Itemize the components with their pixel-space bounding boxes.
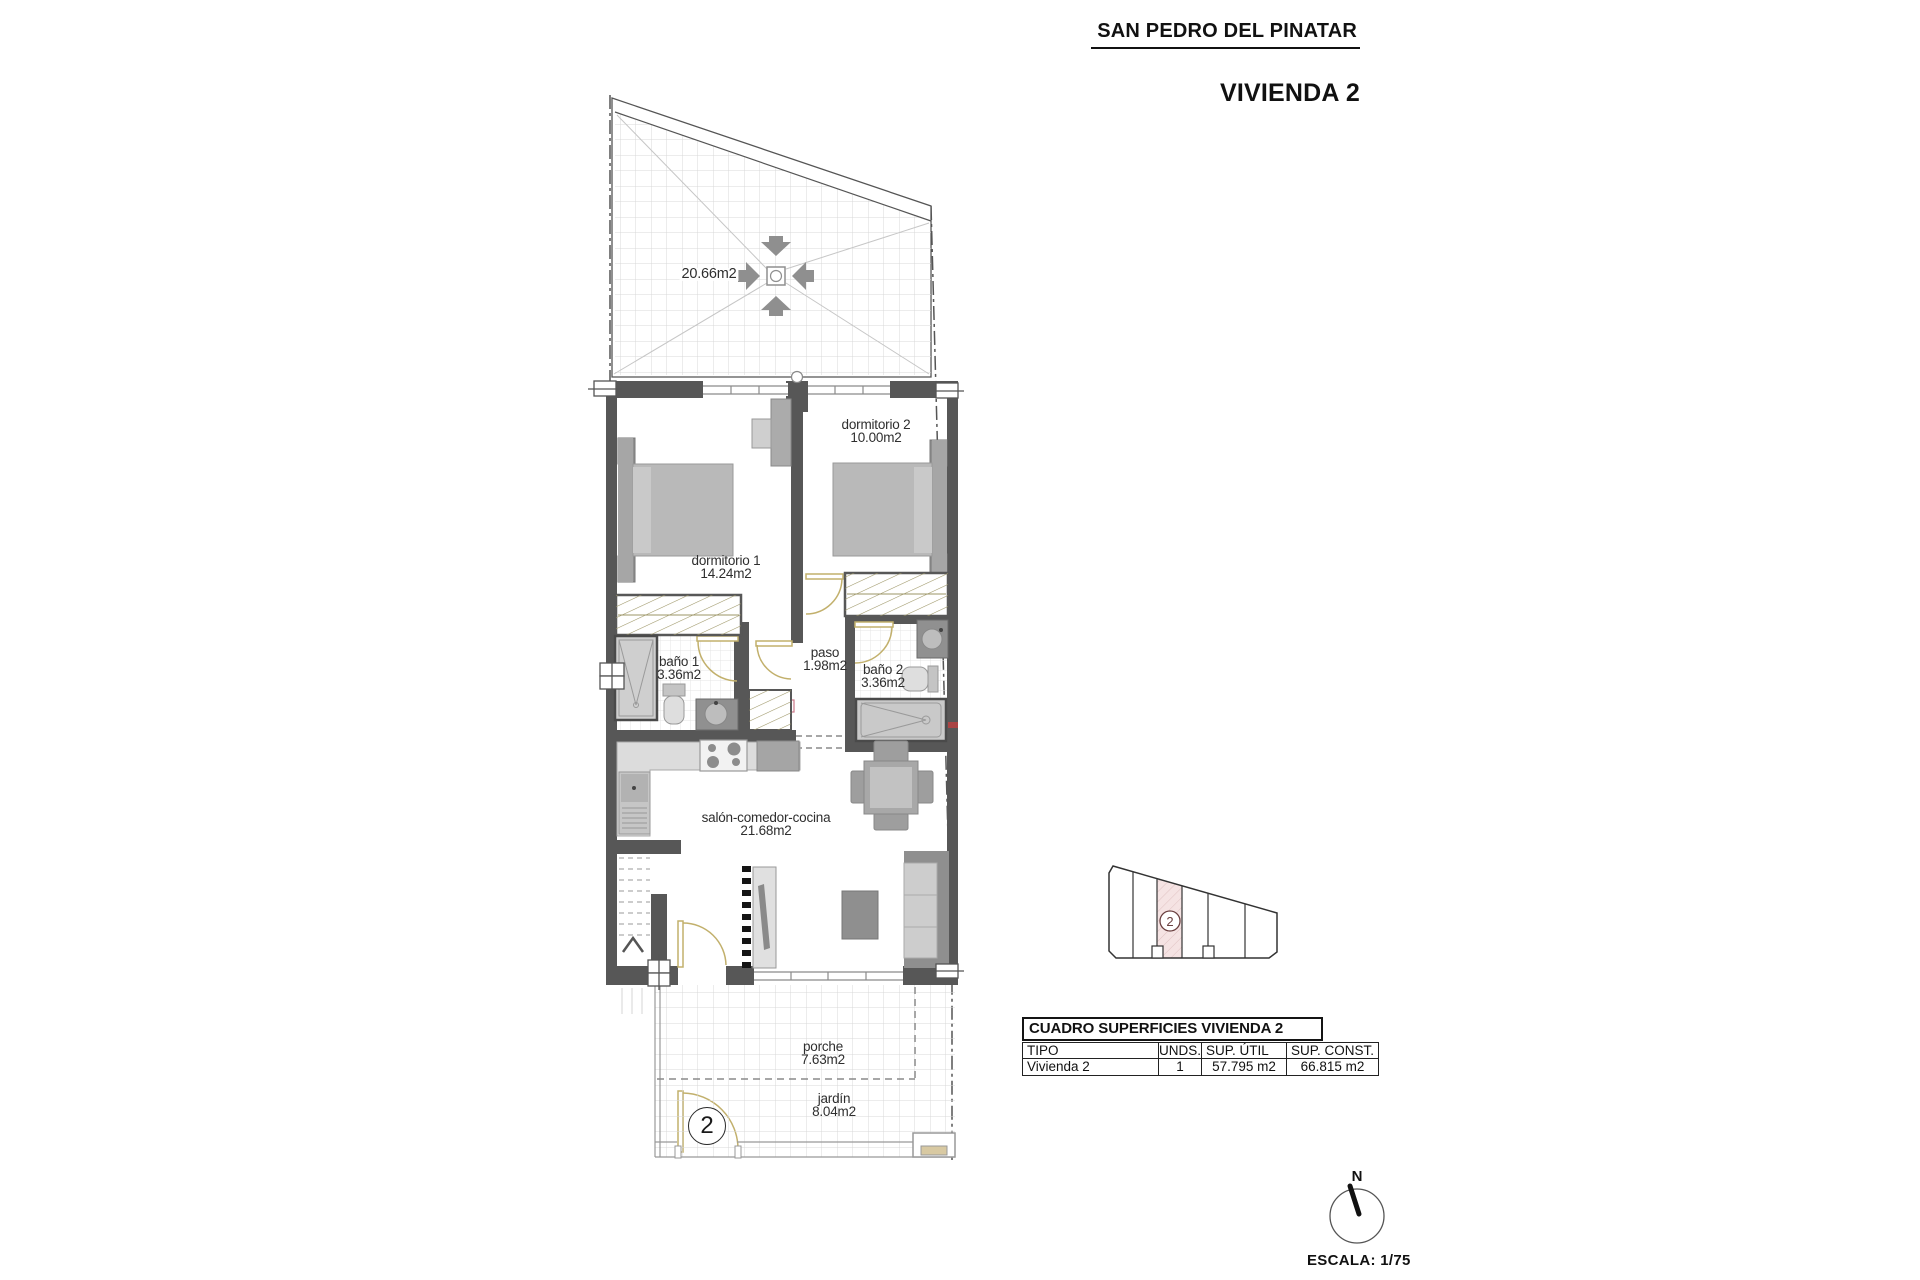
room-area: 14.24m2 bbox=[692, 567, 761, 580]
room-label-porche: porche 7.63m2 bbox=[801, 1040, 845, 1066]
site-plan-unit-number: 2 bbox=[1166, 914, 1173, 929]
scale-label: ESCALA: 1/75 bbox=[1307, 1252, 1411, 1269]
vent-symbol bbox=[792, 372, 803, 383]
room-area: 7.63m2 bbox=[801, 1053, 845, 1066]
plan-title: VIVIENDA 2 bbox=[1220, 79, 1360, 108]
table-cell-sup-util: 57.795 m2 bbox=[1202, 1059, 1287, 1075]
dining-set bbox=[851, 741, 933, 830]
floorplan-sheet: 2 SAN PEDRO DEL PINATAR VIVIENDA 2 20.66… bbox=[0, 0, 1920, 1280]
room-label-bano2: baño 2 3.36m2 bbox=[861, 663, 905, 689]
coffee-table bbox=[842, 891, 878, 939]
compass-needle bbox=[1350, 1186, 1359, 1214]
wardrobe-1 bbox=[616, 595, 741, 635]
table-header-unds: UNDS. bbox=[1159, 1043, 1202, 1059]
room-area: 10.00m2 bbox=[842, 431, 911, 444]
room-area: 3.36m2 bbox=[861, 676, 905, 689]
living-furniture bbox=[742, 741, 949, 968]
stairs-up-arrow bbox=[623, 938, 643, 952]
north-label: N bbox=[1352, 1168, 1363, 1185]
roof-terrace bbox=[612, 98, 931, 377]
wardrobe-2 bbox=[845, 573, 948, 616]
site-plan: 2 bbox=[1109, 866, 1277, 958]
bedroom2-furniture bbox=[833, 440, 948, 616]
room-label-jardin: jardín 8.04m2 bbox=[812, 1092, 856, 1118]
surfaces-table-title: CUADRO SUPERFICIES VIVIENDA 2 bbox=[1022, 1017, 1323, 1041]
table-cell-tipo: Vivienda 2 bbox=[1023, 1059, 1159, 1075]
room-label-salon: salón-comedor-cocina 21.68m2 bbox=[702, 811, 831, 837]
room-label-dormitorio1: dormitorio 1 14.24m2 bbox=[692, 554, 761, 580]
roof-area-label: 20.66m2 bbox=[679, 268, 738, 281]
open-passage-dashes bbox=[796, 736, 845, 748]
riser-marker bbox=[948, 722, 958, 728]
table-header-sup-const: SUP. CONST. bbox=[1287, 1043, 1378, 1059]
room-label-bano1: baño 1 3.36m2 bbox=[657, 655, 701, 681]
sofa bbox=[904, 851, 949, 968]
room-area: 8.04m2 bbox=[812, 1105, 856, 1118]
table-cell-sup-const: 66.815 m2 bbox=[1287, 1059, 1378, 1075]
pantry-closet bbox=[749, 690, 791, 730]
surfaces-table: TIPO UNDS. SUP. ÚTIL SUP. CONST. Viviend… bbox=[1022, 1042, 1379, 1076]
garden-step bbox=[913, 1133, 955, 1157]
room-area: 3.36m2 bbox=[657, 668, 701, 681]
bedroom1-furniture bbox=[616, 399, 791, 635]
table-cell-unds: 1 bbox=[1159, 1059, 1202, 1075]
floorplan-drawing: 2 bbox=[0, 0, 1920, 1280]
room-area: 1.98m2 bbox=[803, 659, 847, 672]
table-header-tipo: TIPO bbox=[1023, 1043, 1159, 1059]
stairs bbox=[619, 858, 650, 1014]
room-label-dormitorio2: dormitorio 2 10.00m2 bbox=[842, 418, 911, 444]
unit-number-badge: 2 bbox=[688, 1107, 726, 1145]
tv-wall-strip bbox=[742, 866, 751, 968]
bathtub bbox=[856, 699, 946, 741]
north-compass bbox=[1330, 1186, 1384, 1243]
room-area: 21.68m2 bbox=[702, 824, 831, 837]
location-title: SAN PEDRO DEL PINATAR bbox=[1091, 20, 1360, 49]
table-header-sup-util: SUP. ÚTIL bbox=[1202, 1043, 1287, 1059]
room-label-paso: paso 1.98m2 bbox=[803, 646, 847, 672]
